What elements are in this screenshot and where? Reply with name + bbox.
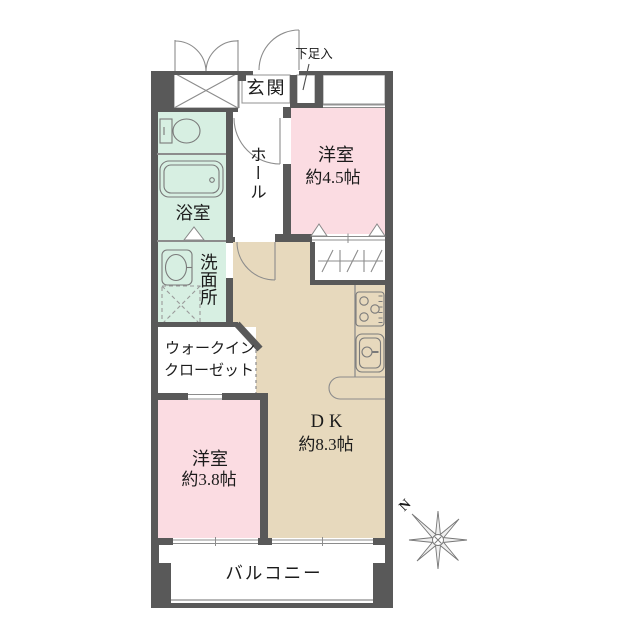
label-room1-size: 約4.5帖 [305, 169, 360, 187]
wall-top-right-run [299, 71, 385, 75]
floorplan-canvas: 玄関 下足入 ホール 洋室 約4.5帖 浴室 洗面所 ウォークイン クローゼット… [0, 0, 640, 640]
wall-right [385, 71, 393, 545]
label-shoe-storage: 下足入 [295, 48, 333, 61]
label-genkan: 玄関 [247, 79, 287, 98]
wall-left [151, 71, 158, 545]
wic-floor [158, 327, 256, 393]
closet-strip-box [323, 75, 385, 105]
floorplan-drawing [0, 0, 640, 640]
wall-room2-dk [260, 400, 268, 538]
label-room2-size: 約3.8帖 [181, 471, 236, 489]
shoe-storage-box [297, 75, 315, 107]
label-dk-name: DK [311, 413, 348, 432]
entrance-storage-doors [175, 40, 238, 71]
wic-room2-opening [188, 395, 222, 400]
label-wic-line1: ウォークイン [165, 342, 255, 358]
window-dk [272, 537, 373, 546]
label-room1-name: 洋室 [318, 146, 354, 165]
storage-x-box-icon [174, 73, 239, 108]
compass-rose-icon [409, 511, 467, 569]
label-washroom: 洗面所 [199, 253, 217, 306]
window-room2 [173, 537, 258, 546]
label-room2-name: 洋室 [192, 450, 228, 469]
balcony-outer-edge [171, 603, 373, 608]
label-hall: ホール [248, 146, 265, 202]
label-bath: 浴室 [176, 204, 211, 222]
wall-top-left-block [158, 75, 174, 109]
entrance-door [259, 30, 299, 70]
balcony-pillar-left [151, 563, 171, 608]
balcony-pillar-right [373, 563, 393, 608]
label-dk-size: 約8.3帖 [298, 436, 353, 454]
label-balcony: バルコニー [225, 564, 322, 582]
label-wic-line2: クローゼット [164, 364, 254, 380]
western-room-2-floor [158, 400, 260, 538]
